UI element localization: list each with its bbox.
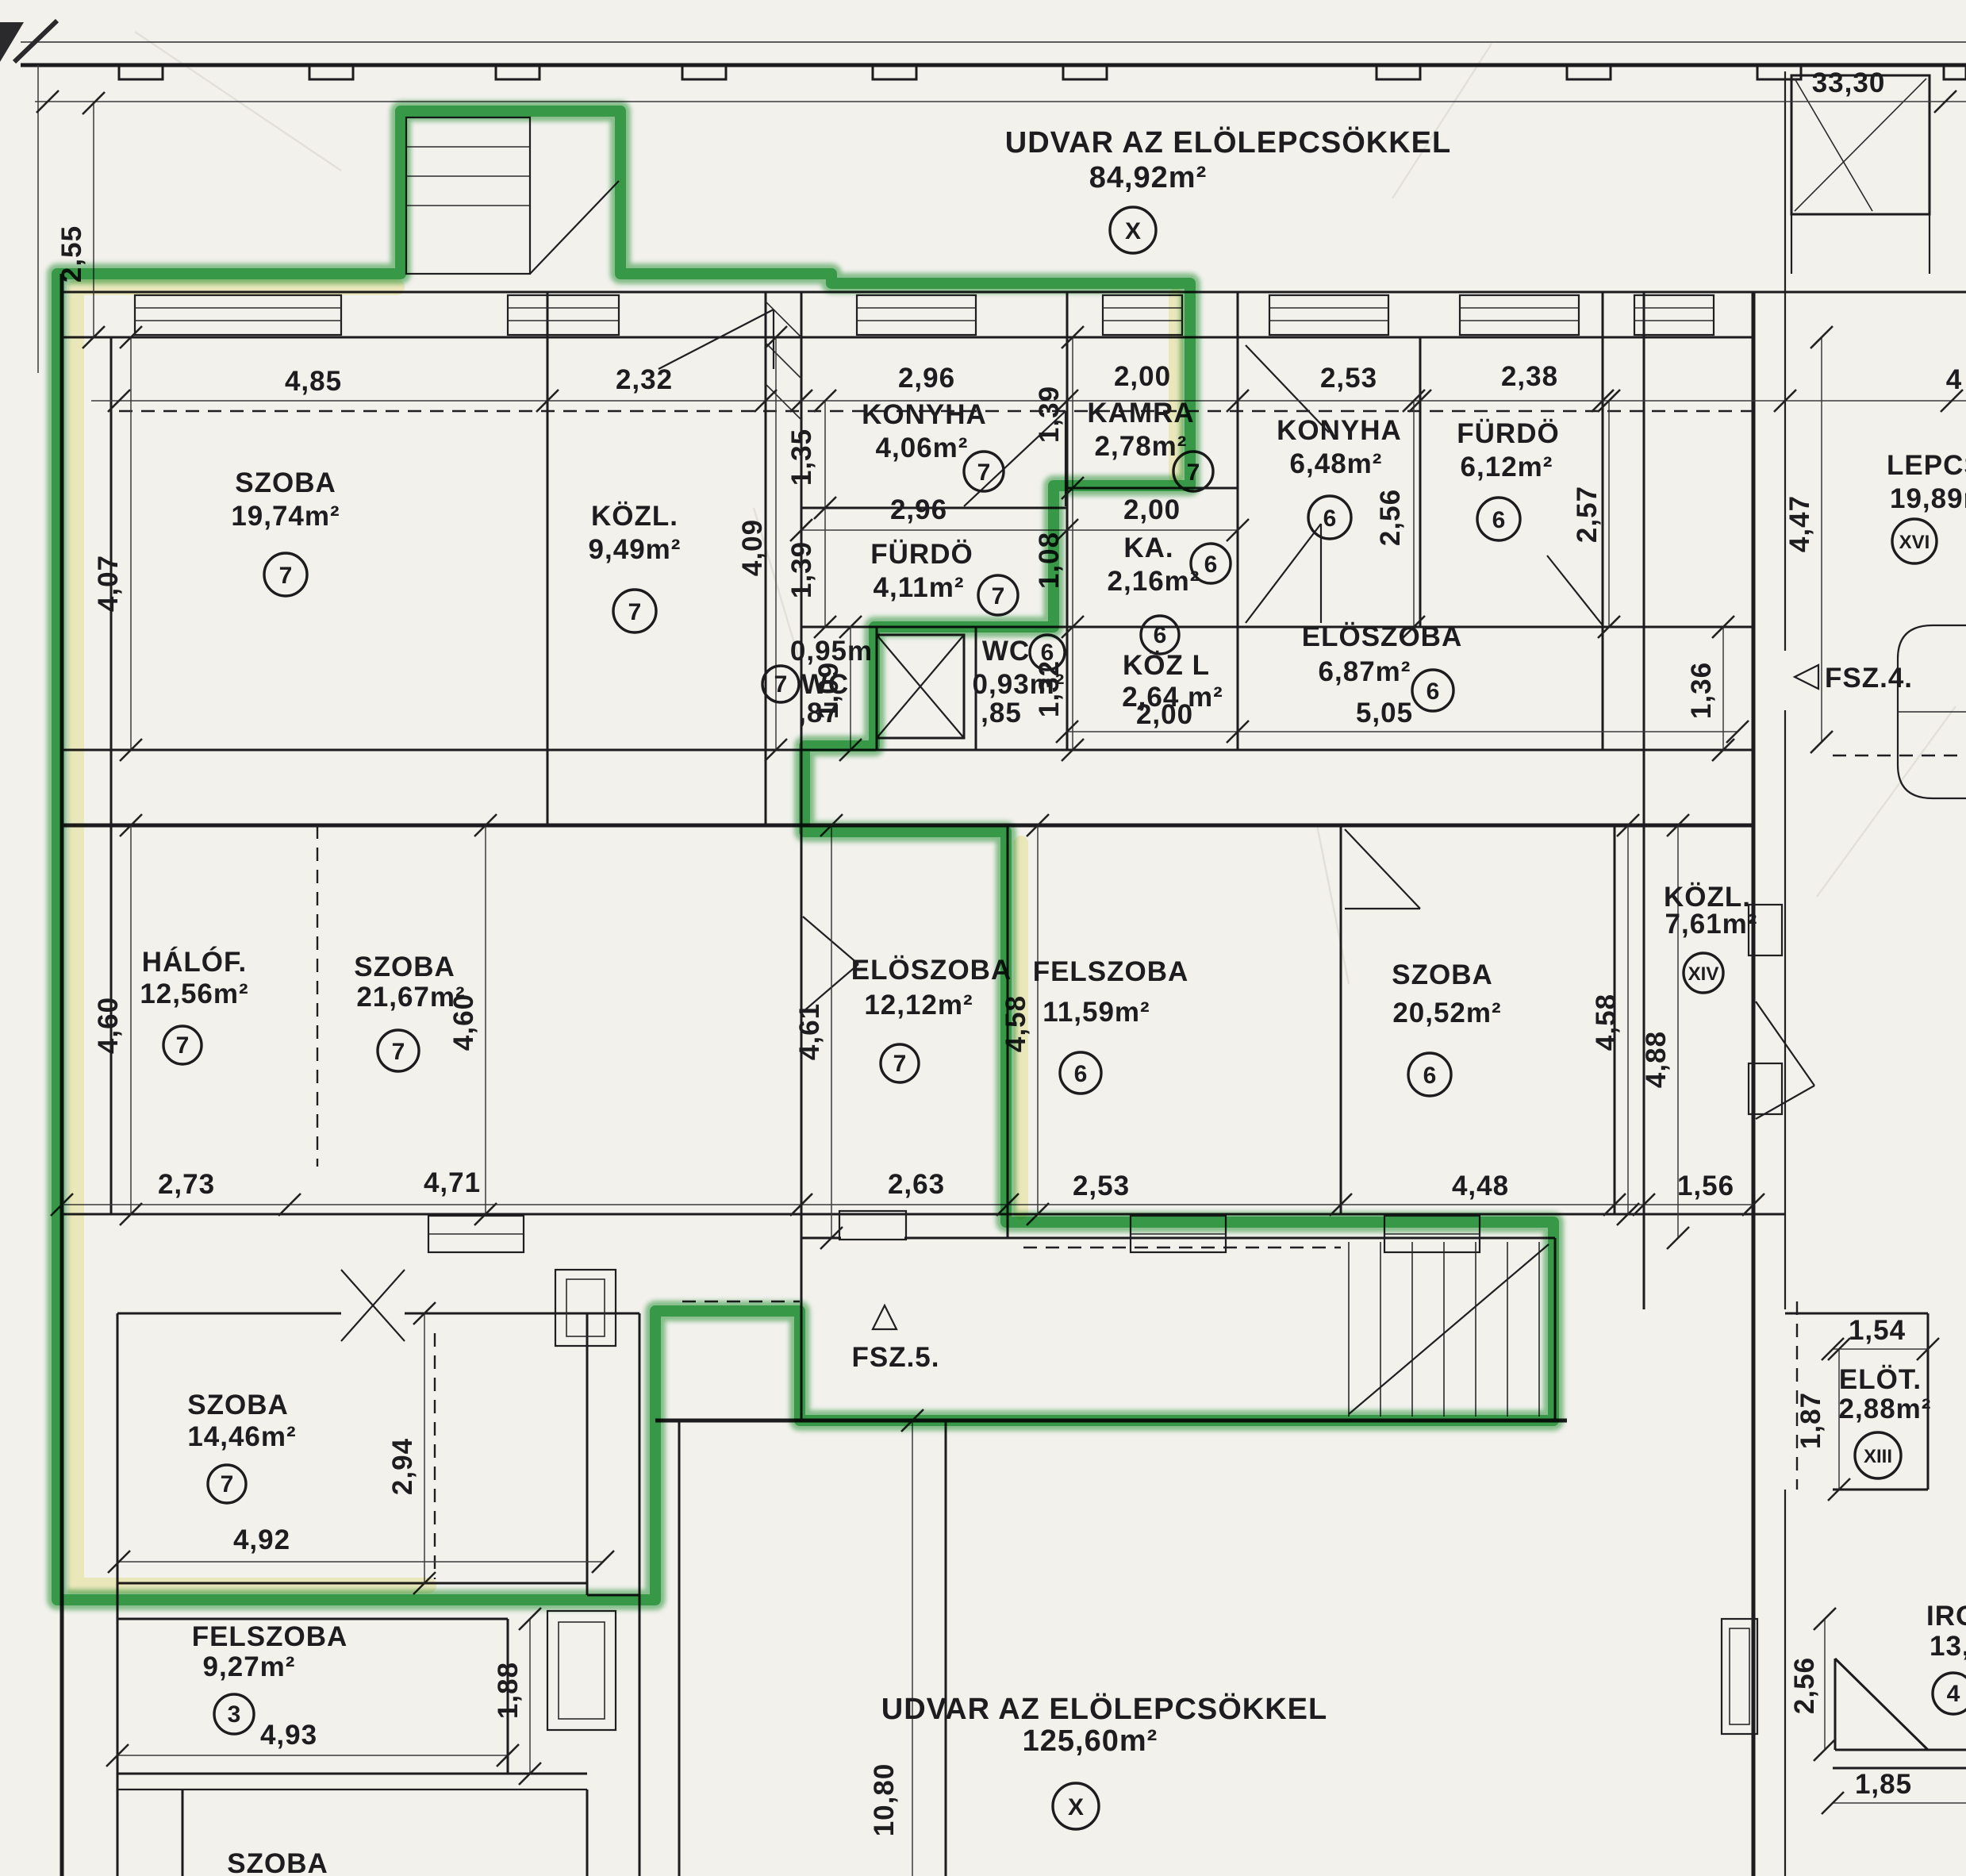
- room-number: 6: [1492, 507, 1506, 533]
- dim: 4,93: [260, 1720, 317, 1751]
- dim: 4,85: [285, 366, 342, 397]
- room-area: 6,48m²: [1290, 448, 1383, 479]
- room-number: 6: [1074, 1061, 1088, 1087]
- courtyard-top-area: 84,92m²: [1089, 161, 1208, 194]
- room-number: 6: [1041, 640, 1054, 666]
- courtyard-bottom-name: UDVAR AZ ELÖLEPCSÖKKEL: [881, 1692, 1327, 1726]
- room-name: IRO: [1926, 1601, 1966, 1632]
- room-number: 7: [774, 671, 788, 698]
- room-name: KÖZL.: [591, 501, 678, 532]
- dim: 2,96: [890, 494, 947, 525]
- room-area: 20,52m²: [1392, 998, 1501, 1028]
- room-area: 19,89m: [1890, 483, 1966, 514]
- dim: 4,71: [424, 1167, 481, 1198]
- dim: 10,80: [869, 1763, 900, 1837]
- room-area: 14,46m²: [187, 1421, 296, 1452]
- dim: 4,60: [93, 997, 124, 1054]
- entry-label-fsz4: FSZ.4.: [1825, 663, 1913, 694]
- dim: 2,63: [888, 1169, 945, 1200]
- room-area: 4,06m²: [876, 432, 969, 463]
- room-name: HÁLÓF.: [142, 946, 247, 978]
- room-number: 3: [228, 1701, 241, 1728]
- room-name: WC: [801, 669, 849, 700]
- dim: 1,54: [1849, 1315, 1906, 1346]
- room-area: 12,12m²: [864, 990, 973, 1021]
- room-area: 6,12m²: [1461, 452, 1553, 482]
- room-number: 7: [977, 459, 991, 486]
- room-number: 4: [1947, 1681, 1960, 1707]
- room-number: XVI: [1899, 532, 1930, 553]
- dim: 1,88: [493, 1662, 524, 1719]
- courtyard-top-number: X: [1125, 218, 1141, 244]
- room-number: 7: [279, 563, 293, 589]
- dim: 2,00: [1123, 494, 1181, 525]
- room-number: 7: [628, 599, 642, 625]
- room-area: 21,67m²: [356, 982, 465, 1013]
- dim: 1,39: [786, 541, 817, 598]
- room-name: ELÖSZOBA: [1302, 621, 1462, 652]
- room-sub-dim: ,87: [798, 698, 839, 728]
- room-sub-dim: ,85: [981, 698, 1022, 728]
- courtyard-bottom-number: X: [1068, 1794, 1084, 1820]
- entry-label-fsz5: FSZ.5.: [851, 1342, 939, 1373]
- room-area: 4,11m²: [874, 572, 965, 603]
- dim: 2,53: [1320, 363, 1377, 394]
- room-name: SZOBA: [235, 467, 336, 498]
- dim: 1,39: [1034, 386, 1065, 443]
- room-name: FÜRDÖ: [1457, 418, 1559, 449]
- dim: 4,88: [1641, 1031, 1672, 1088]
- dim: 1,85: [1855, 1769, 1912, 1800]
- room-name: KONYHA: [1277, 415, 1402, 446]
- room-number: 6: [1323, 506, 1337, 532]
- dim: 1,36: [1686, 662, 1717, 719]
- room-number: 6: [1154, 622, 1167, 648]
- room-number: XIV: [1688, 963, 1719, 985]
- dim: 2,56: [1375, 489, 1406, 546]
- room-name: ELÖT.: [1839, 1364, 1922, 1395]
- dim: 2,56: [1789, 1657, 1820, 1714]
- room-name: SZOBA: [1392, 959, 1493, 990]
- dim: 2,96: [898, 363, 955, 394]
- dim: 4,61: [794, 1003, 825, 1060]
- room-number: 6: [1423, 1063, 1437, 1089]
- room-name: LEPCS: [1887, 450, 1966, 481]
- courtyard-bottom-area: 125,60m²: [1023, 1724, 1158, 1758]
- room-number: XIII: [1864, 1446, 1892, 1467]
- room-area: 6,87m²: [1319, 656, 1411, 687]
- dim: 2,94: [387, 1438, 418, 1495]
- dim-total: 33,30: [1812, 67, 1886, 98]
- dim: 1,87: [1795, 1392, 1826, 1449]
- dim: 2,00: [1114, 361, 1171, 392]
- dim: 1,56: [1677, 1171, 1734, 1201]
- dim: 1,35: [786, 429, 817, 486]
- room-area: 9,27m²: [203, 1651, 296, 1682]
- room-name: WC: [982, 636, 1030, 667]
- room-area: 9,49m²: [589, 534, 682, 565]
- room-name: KA.: [1123, 532, 1173, 563]
- room-area: 0,95m: [790, 636, 873, 667]
- room-name: ELÖSZOBA: [851, 955, 1012, 986]
- room-number: 7: [176, 1032, 190, 1059]
- dim: 4,58: [1591, 994, 1622, 1051]
- dim: 4,48: [1452, 1171, 1509, 1201]
- room-number: 7: [221, 1471, 234, 1497]
- room-number: 6: [1204, 552, 1218, 578]
- dim: 2,53: [1073, 1171, 1130, 1201]
- dim: 2,57: [1572, 486, 1603, 543]
- room-area: 2,88m²: [1839, 1394, 1932, 1424]
- room-name: FELSZOBA: [1033, 956, 1189, 987]
- dim: 4,07: [93, 555, 124, 612]
- room-area: 2,16m²: [1108, 566, 1200, 597]
- room-number: 7: [392, 1039, 405, 1065]
- room-area: 11,59m²: [1043, 997, 1150, 1028]
- dim: 2,32: [616, 364, 673, 395]
- room-number: 6: [1427, 679, 1440, 705]
- room-area: 7,61m²: [1665, 909, 1758, 940]
- courtyard-top-name: UDVAR AZ ELÖLEPCSÖKKEL: [1005, 125, 1451, 160]
- floor-plan-page: 33,30 2,55 4,85 2,32 2,96 2,00 2,53 2,38…: [0, 0, 1966, 1876]
- room-name: FELSZOBA: [192, 1621, 348, 1652]
- dim: 2,38: [1501, 361, 1558, 392]
- room-area: 13,7: [1930, 1631, 1966, 1662]
- room-name: KÖZ L: [1123, 650, 1210, 681]
- room-name: KONYHA: [862, 399, 987, 430]
- room-area: 2,64 m²: [1122, 682, 1223, 713]
- floor-plan-svg: 33,30 2,55 4,85 2,32 2,96 2,00 2,53 2,38…: [0, 0, 1966, 1876]
- dim: 2,73: [158, 1169, 215, 1200]
- dim: 4: [1946, 364, 1962, 395]
- room-area: 0,93m²: [973, 669, 1066, 700]
- room-name: FÜRDÖ: [870, 539, 973, 570]
- dim: 4,92: [233, 1524, 290, 1555]
- room-number: 7: [992, 583, 1005, 609]
- room-area: 19,74m²: [231, 501, 340, 532]
- room-name: SZOBA: [187, 1390, 289, 1420]
- room-area: 12,56m²: [140, 978, 248, 1009]
- room-number: 7: [893, 1051, 907, 1077]
- room-name: SZOBA: [354, 951, 455, 982]
- dim: 5,05: [1356, 698, 1413, 728]
- dim: 4,47: [1784, 495, 1815, 552]
- room-name: SZOBA: [227, 1848, 328, 1876]
- dim: 4,09: [737, 519, 768, 576]
